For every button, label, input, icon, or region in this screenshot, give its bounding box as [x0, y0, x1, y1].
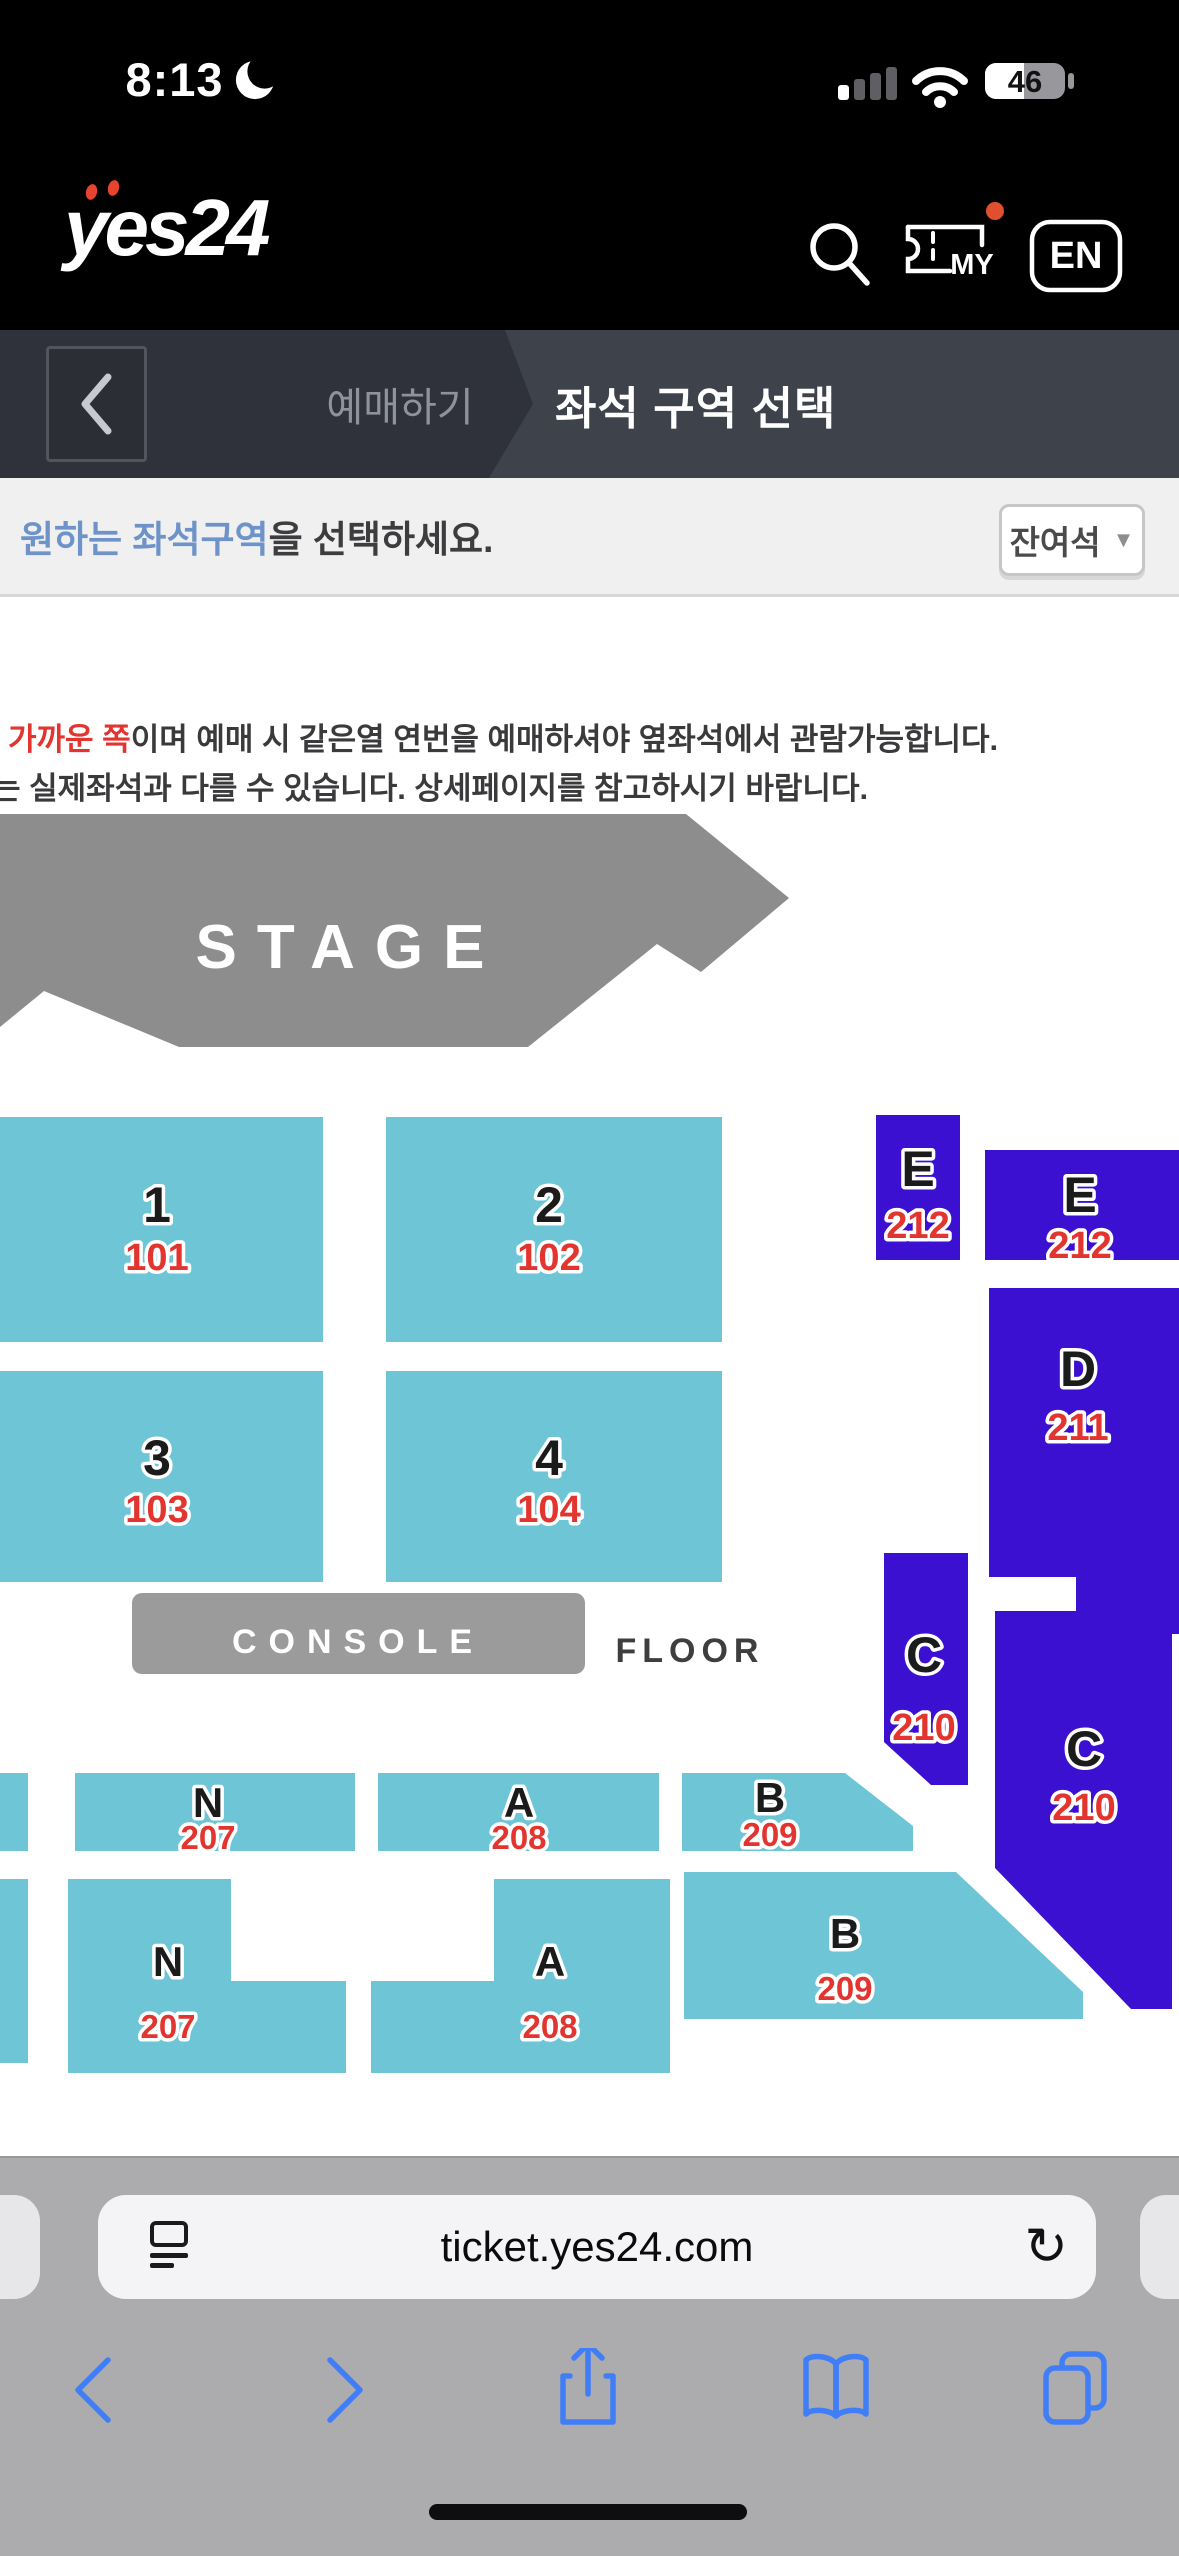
section-101[interactable]: 1 101: [0, 1117, 323, 1342]
svg-text:E: E: [1063, 1167, 1096, 1223]
battery-icon: 46: [985, 63, 1074, 99]
svg-text:207: 207: [140, 2008, 195, 2045]
svg-text:101: 101: [125, 1237, 188, 1279]
language-button[interactable]: EN: [1032, 222, 1120, 290]
next-tab-stub[interactable]: [1140, 2195, 1179, 2299]
share-icon[interactable]: [563, 2348, 613, 2422]
reload-icon[interactable]: ↻: [1024, 2195, 1068, 2299]
url-text: ticket.yes24.com: [98, 2195, 1096, 2299]
battery-percent: 46: [1008, 64, 1042, 99]
console-shape: CONSOLE: [132, 1593, 585, 1674]
section-102[interactable]: 2 102: [386, 1117, 722, 1342]
back-button[interactable]: [46, 346, 147, 462]
svg-text:B: B: [830, 1910, 860, 1957]
section-edge-sliver: [0, 1879, 28, 2063]
svg-text:C: C: [906, 1627, 942, 1683]
section-210-left[interactable]: C 210: [884, 1553, 968, 1785]
section-208-rear[interactable]: A 208: [371, 1879, 670, 2073]
chevron-left-icon: [75, 369, 119, 439]
svg-text:D: D: [1060, 1341, 1096, 1397]
header-actions: MY EN: [800, 190, 1179, 310]
status-right-icons: 46: [820, 50, 1080, 112]
stage-label: STAGE: [196, 913, 505, 982]
forward-nav-icon[interactable]: [330, 2360, 360, 2420]
tabs-icon[interactable]: [1046, 2354, 1104, 2422]
chevron-down-icon: ▼: [1113, 527, 1135, 553]
console-label: CONSOLE: [232, 1623, 484, 1661]
search-icon[interactable]: [813, 226, 867, 283]
section-104[interactable]: 4 104: [386, 1371, 722, 1582]
section-207-front[interactable]: N 207: [75, 1773, 355, 1856]
section-208-front[interactable]: A 208: [378, 1773, 659, 1856]
svg-text:2: 2: [535, 1177, 563, 1233]
seat-map: STAGE 1 101 2 102 3 103 4 104 E 212: [0, 597, 1179, 2156]
floor-label: FLOOR: [616, 1632, 765, 1670]
section-212-right[interactable]: E 212: [985, 1150, 1179, 1267]
my-ticket-icon[interactable]: MY: [908, 202, 1004, 281]
remaining-seats-dropdown[interactable]: 잔여석 ▼: [999, 504, 1145, 576]
booking-step-bar: 예매하기 좌석 구역 선택: [0, 330, 1179, 478]
status-time: 8:13: [92, 48, 312, 110]
svg-text:B: B: [755, 1774, 785, 1821]
svg-text:103: 103: [125, 1489, 188, 1531]
my-label: MY: [950, 249, 994, 281]
svg-text:211: 211: [1047, 1407, 1108, 1449]
breadcrumb: 예매하기: [250, 330, 550, 478]
svg-text:C: C: [1066, 1721, 1102, 1777]
app-header: 8:13 46: [0, 0, 1179, 330]
instruction-text: 원하는 좌석구역을 선택하세요.: [20, 478, 493, 594]
page-title: 좌석 구역 선택: [555, 330, 975, 478]
stage-shape: STAGE: [0, 814, 789, 1047]
section-212-left[interactable]: E 212: [876, 1115, 960, 1260]
svg-text:E: E: [901, 1141, 934, 1197]
section-207-rear[interactable]: N 207: [68, 1879, 346, 2073]
svg-text:210: 210: [1052, 1787, 1115, 1829]
instruction-rest: 을 선택하세요.: [269, 509, 494, 563]
notification-dot: [986, 202, 1004, 220]
phone-screen: 8:13 46: [0, 0, 1179, 2556]
instruction-highlight: 원하는 좌석구역: [20, 509, 269, 563]
svg-text:3: 3: [143, 1430, 171, 1486]
svg-text:207: 207: [180, 1819, 235, 1856]
section-209-front[interactable]: B 209: [682, 1773, 913, 1853]
browser-chrome: ticket.yes24.com ↻: [0, 2156, 1179, 2556]
yes24-logo[interactable]: yes24: [64, 182, 266, 274]
svg-text:4: 4: [535, 1430, 563, 1486]
svg-text:209: 209: [742, 1816, 797, 1853]
language-label: EN: [1050, 235, 1103, 277]
clock-text: 8:13: [125, 52, 223, 107]
svg-text:212: 212: [1048, 1225, 1111, 1267]
home-indicator: [429, 2504, 747, 2520]
section-103[interactable]: 3 103: [0, 1371, 323, 1582]
previous-tab-stub[interactable]: [0, 2195, 40, 2299]
instruction-bar: 원하는 좌석구역을 선택하세요. 잔여석 ▼: [0, 478, 1179, 597]
svg-text:210: 210: [892, 1707, 955, 1749]
back-nav-icon[interactable]: [78, 2360, 108, 2420]
browser-toolbar: [0, 2348, 1179, 2448]
svg-text:209: 209: [817, 1970, 872, 2007]
focus-moon-icon: [233, 56, 279, 102]
svg-text:1: 1: [143, 1177, 171, 1233]
svg-text:A: A: [535, 1938, 565, 1985]
svg-text:208: 208: [522, 2008, 577, 2045]
wifi-icon: [916, 71, 964, 108]
svg-text:N: N: [153, 1938, 183, 1985]
svg-text:208: 208: [491, 1819, 546, 1856]
svg-text:102: 102: [517, 1237, 580, 1279]
svg-text:212: 212: [886, 1205, 949, 1247]
cellular-signal-icon: [838, 67, 897, 100]
section-edge-sliver: [0, 1773, 28, 1851]
address-bar[interactable]: ticket.yes24.com ↻: [98, 2195, 1096, 2299]
bookmarks-icon[interactable]: [806, 2357, 866, 2416]
svg-text:104: 104: [517, 1489, 580, 1531]
dropdown-label: 잔여석: [1010, 516, 1101, 564]
